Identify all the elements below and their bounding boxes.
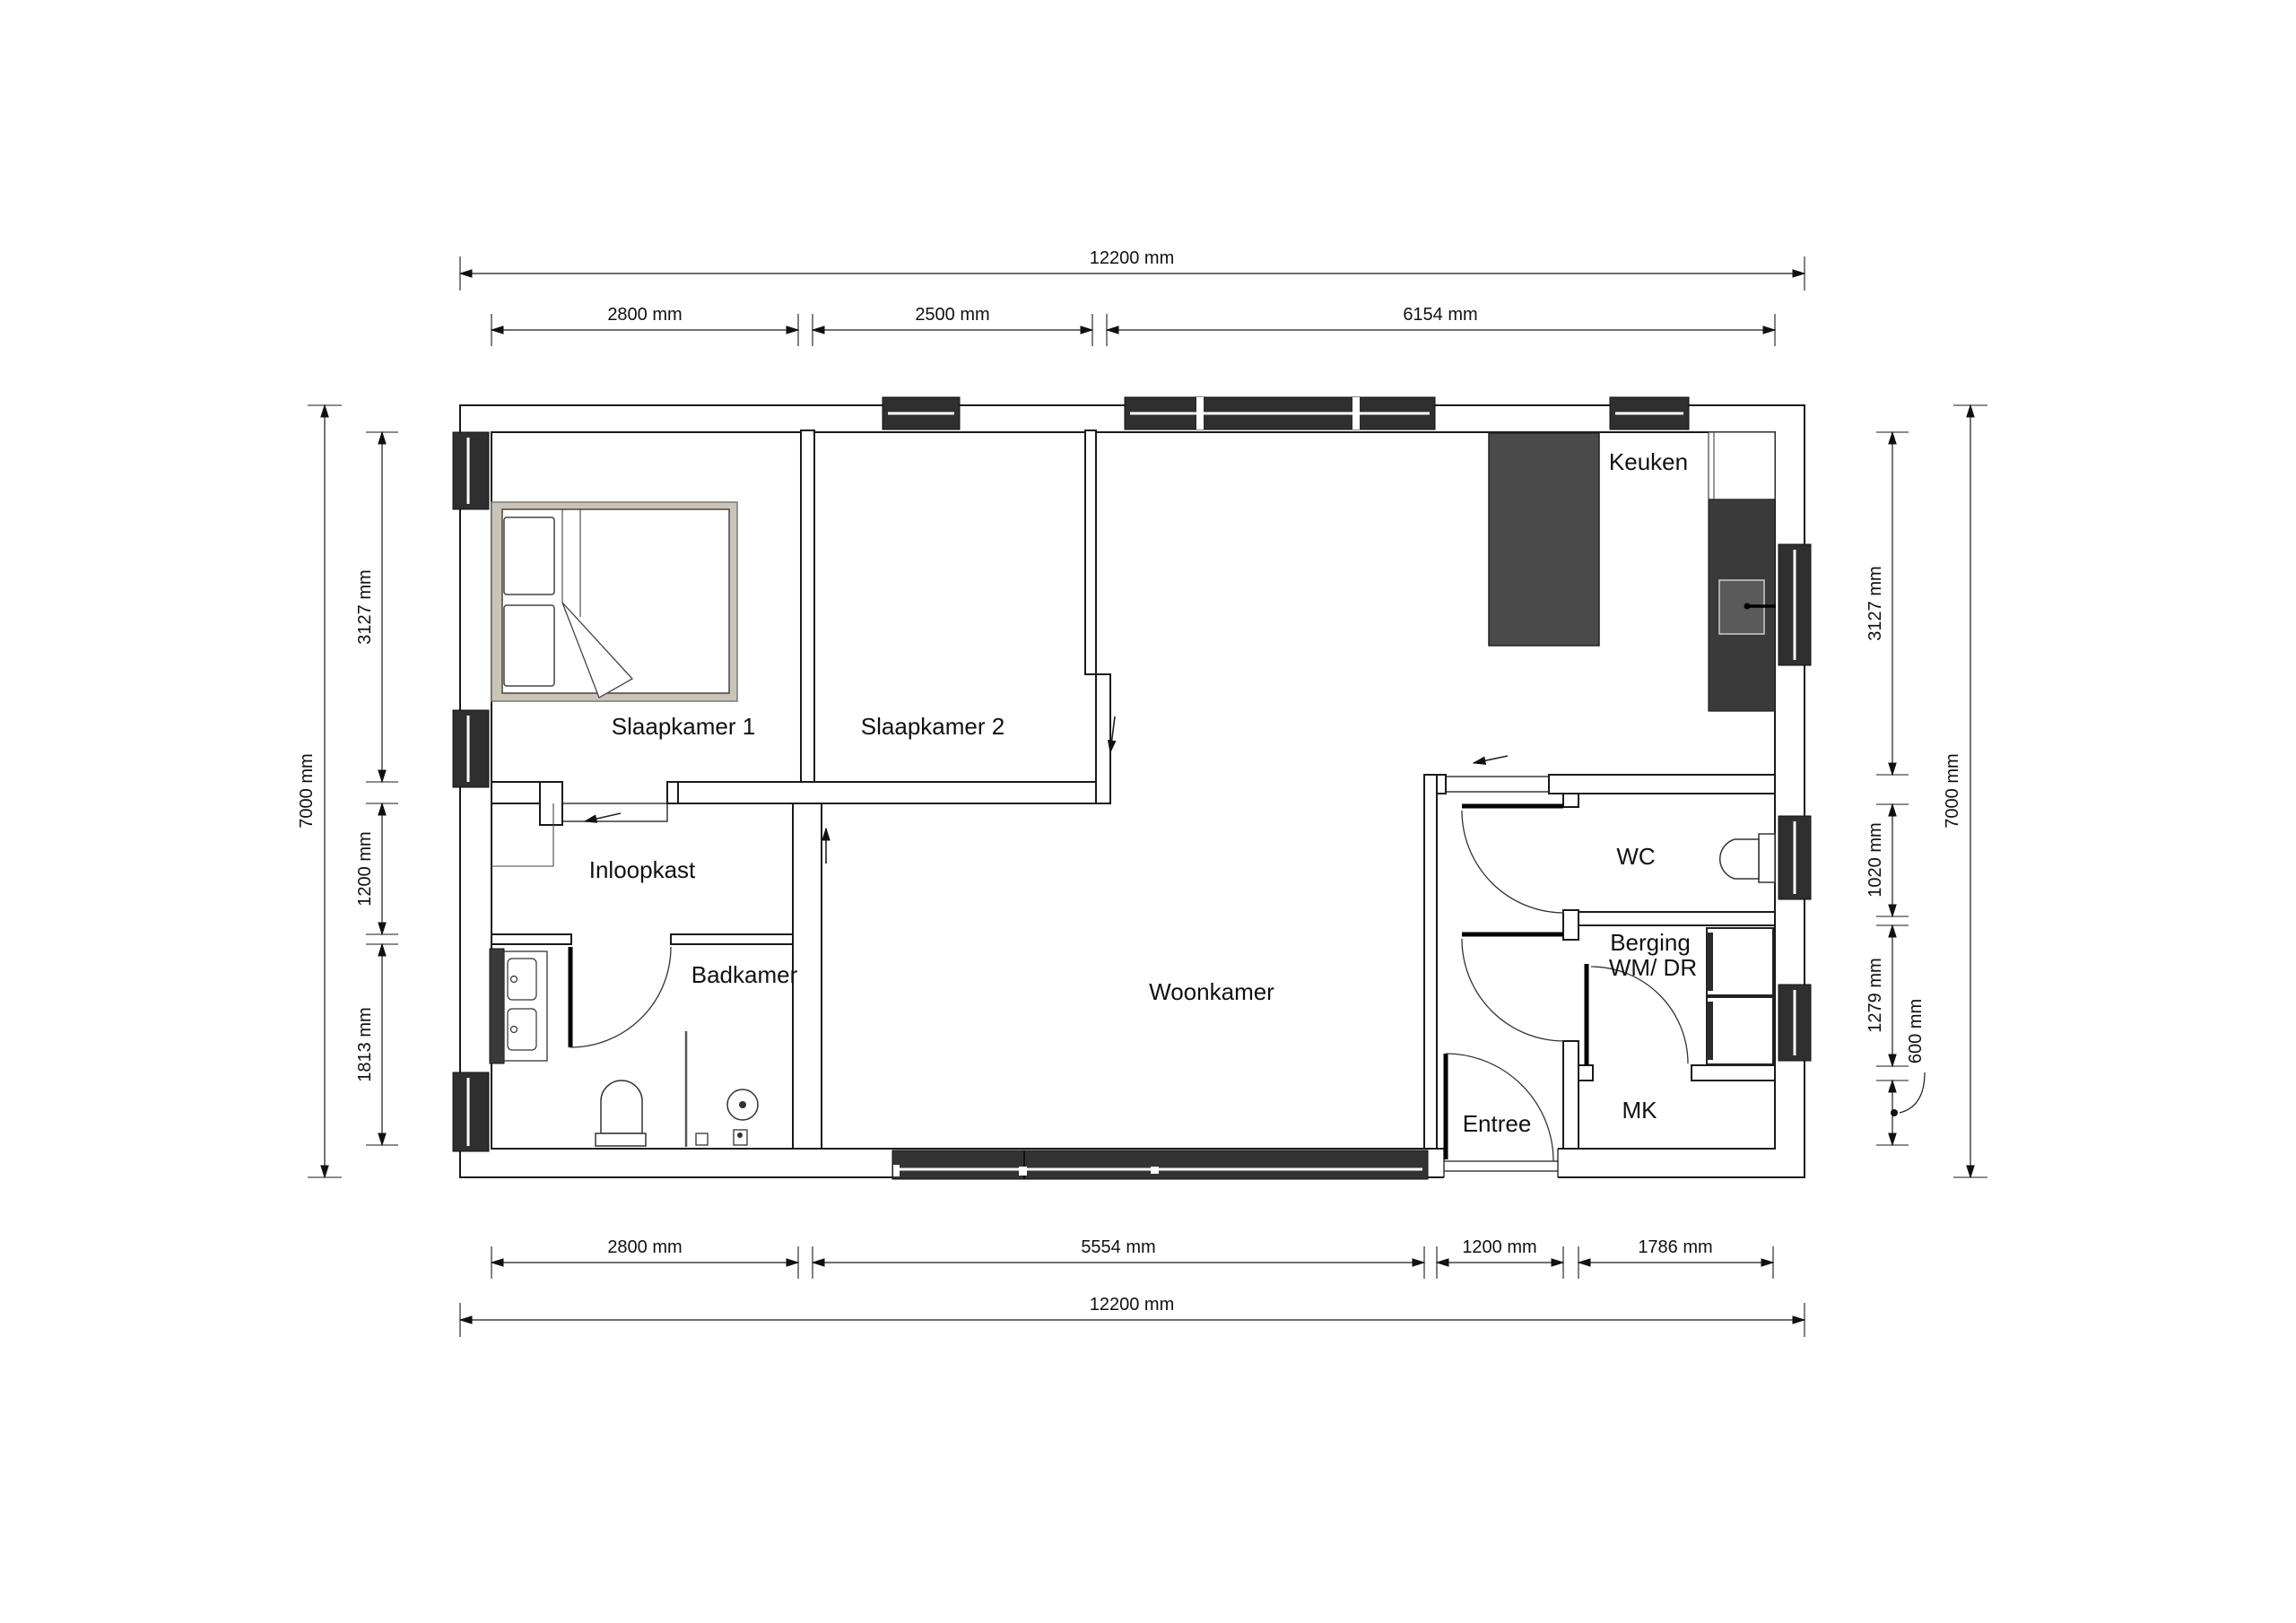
wall-slaapkamer2-woonkamer-upper (1085, 430, 1096, 674)
svg-text:600 mm: 600 mm (1906, 999, 1926, 1063)
svg-text:3127 mm: 3127 mm (355, 569, 375, 644)
door-badkamer (570, 947, 671, 1047)
bed (491, 502, 737, 701)
dim-left-7000: 7000 mm (297, 405, 342, 1177)
dim-bottom-1786: 1786 mm (1578, 1237, 1773, 1279)
room-label-woonkamer: Woonkamer (1149, 978, 1274, 1005)
wall-band-main (678, 782, 1096, 803)
dim-left-1200: 1200 mm (355, 803, 398, 944)
svg-text:2800 mm: 2800 mm (607, 305, 682, 325)
svg-text:7000 mm: 7000 mm (297, 753, 317, 828)
tap-1 (511, 976, 517, 983)
window-right-berging (1779, 985, 1811, 1061)
svg-text:7000 mm: 7000 mm (1943, 753, 1962, 828)
room-label-badkamer: Badkamer (691, 961, 798, 988)
door-entree (1446, 1054, 1553, 1161)
pillow-1 (504, 517, 554, 595)
opening-schuifdeur-keuken (1446, 777, 1549, 792)
vanity (490, 949, 547, 1063)
shower-tap (696, 1133, 708, 1145)
dim-top-2800: 2800 mm (491, 305, 798, 346)
front-door-opening (1444, 1148, 1558, 1178)
floor-plan-page: Slaapkamer 1 Slaapkamer 2 Keuken Inloopk… (0, 0, 2296, 1623)
arrow-schuifdeur-keuken (1474, 756, 1508, 763)
dim-top-overall: 12200 mm (460, 248, 1805, 291)
wall-berging-bottom-right (1692, 1065, 1775, 1081)
wall-band-left (491, 782, 540, 803)
svg-text:12200 mm: 12200 mm (1090, 1295, 1175, 1315)
room-label-slaapkamer-2: Slaapkamer 2 (861, 713, 1004, 740)
svg-text:1020 mm: 1020 mm (1865, 822, 1885, 897)
wall-hal-east-stub-top (1563, 794, 1578, 807)
wall-hal-east-bottom (1563, 1041, 1578, 1149)
dim-top-2500: 2500 mm (813, 305, 1092, 346)
room-label-inloopkast: Inloopkast (589, 856, 696, 883)
room-label-berging-wmdr: WM/ DR (1609, 954, 1697, 981)
dim-bottom-5554: 5554 mm (813, 1237, 1424, 1279)
wall-band-pocket-jamb (540, 782, 562, 825)
room-label-wc: WC (1616, 843, 1655, 870)
window-left-1 (453, 432, 489, 509)
dim-left-1813: 1813 mm (355, 944, 398, 1145)
svg-text:2500 mm: 2500 mm (915, 305, 989, 325)
wall-wc-top-main (1549, 775, 1775, 794)
wall-hal-west (1424, 775, 1437, 1149)
svg-text:1200 mm: 1200 mm (1462, 1237, 1536, 1257)
wall-badkamer-divider-right (671, 934, 793, 944)
dim-right-1020: 1020 mm (1865, 804, 1909, 925)
wall-berging-bottom-left (1578, 1065, 1593, 1081)
pillow-2 (504, 605, 554, 686)
sliding-door-panel-inloopkast (562, 803, 667, 821)
room-label-entree: Entree (1463, 1110, 1532, 1137)
wall-badkamer-divider-left (491, 934, 571, 944)
wall-slaapkamer2-woonkamer-lower (1096, 674, 1110, 803)
svg-text:1200 mm: 1200 mm (355, 831, 375, 906)
wall-band-right-jamb (667, 782, 678, 803)
wall-hal-east-stub-mid (1563, 910, 1578, 940)
shower (686, 1031, 758, 1147)
toilet-badkamer (596, 1081, 646, 1146)
svg-text:3127 mm: 3127 mm (1865, 566, 1885, 640)
door-berging-hal (1462, 934, 1564, 1041)
svg-text:1786 mm: 1786 mm (1638, 1237, 1712, 1257)
dim-right-3127: 3127 mm (1865, 432, 1909, 804)
room-label-keuken: Keuken (1609, 448, 1688, 475)
dryer (1707, 997, 1773, 1064)
sliding-glass-door-bottom (892, 1150, 1428, 1179)
svg-text:6154 mm: 6154 mm (1403, 305, 1477, 325)
wall-wc-top-stub (1437, 775, 1446, 794)
svg-text:1279 mm: 1279 mm (1865, 958, 1885, 1032)
dim-top-6154: 6154 mm (1107, 305, 1775, 346)
dim-bottom-1200: 1200 mm (1437, 1237, 1563, 1279)
dim-left-3127: 3127 mm (355, 432, 398, 803)
window-right-wc (1779, 816, 1811, 899)
svg-text:2800 mm: 2800 mm (607, 1237, 682, 1257)
tap-2 (511, 1027, 517, 1033)
dim-bottom-2800: 2800 mm (491, 1237, 798, 1279)
window-top-2 (1125, 397, 1435, 430)
svg-text:5554 mm: 5554 mm (1081, 1237, 1155, 1257)
svg-text:1813 mm: 1813 mm (355, 1007, 375, 1081)
kitchen-island (1489, 433, 1599, 646)
window-left-2 (453, 710, 489, 787)
window-top-3 (1610, 397, 1689, 430)
kitchen-counter (1709, 432, 1776, 711)
wall-wc-berging-divider (1578, 912, 1775, 925)
floor-plan-canvas: Slaapkamer 1 Slaapkamer 2 Keuken Inloopk… (0, 0, 2296, 1623)
svg-text:12200 mm: 12200 mm (1090, 248, 1175, 268)
dim-right-1279: 1279 mm (1865, 925, 1909, 1081)
window-left-3 (453, 1072, 489, 1151)
room-label-mk: MK (1622, 1097, 1658, 1124)
window-right-keuken (1779, 544, 1811, 665)
dim-bottom-overall: 12200 mm (460, 1295, 1805, 1337)
room-label-berging: Berging (1610, 929, 1691, 956)
dim-right-7000: 7000 mm (1943, 405, 1987, 1177)
arrow-schuifdeur-inloopkast (585, 813, 621, 821)
toilet-wc (1720, 834, 1775, 882)
wall-slaapkamer1-slaapkamer2 (801, 430, 814, 784)
door-wc (1462, 806, 1564, 913)
washing-machine (1707, 928, 1773, 995)
window-top-1 (883, 397, 960, 430)
room-label-slaapkamer-1: Slaapkamer 1 (612, 713, 755, 740)
